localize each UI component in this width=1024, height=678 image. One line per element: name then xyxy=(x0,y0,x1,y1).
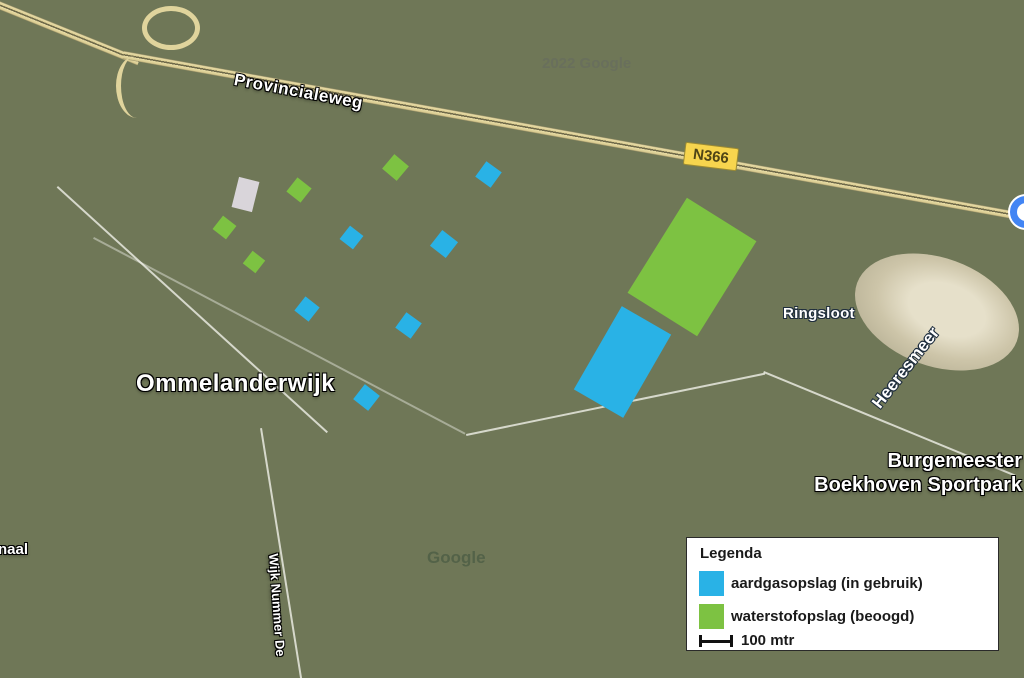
legend-label-aardgasopslag: aardgasopslag (in gebruik) xyxy=(731,575,923,592)
sportpark-label: Burgemeester Boekhoven Sportpark xyxy=(814,449,1022,498)
google-watermark-top: 2022 Google xyxy=(542,55,631,72)
legend-item-aardgasopslag: aardgasopslag (in gebruik) xyxy=(687,571,1000,596)
satellite-map: Provincialeweg N366 Ommelanderwijk Rings… xyxy=(0,0,1024,678)
legend: Legenda aardgasopslag (in gebruik) water… xyxy=(686,537,999,651)
legend-title: Legenda xyxy=(700,545,762,562)
scale-bar-icon xyxy=(699,635,733,647)
town-label-ommelanderwijk: Ommelanderwijk xyxy=(136,370,335,398)
waterway-label-ringsloot: Ringsloot xyxy=(783,305,855,322)
canal-label-partial: naal xyxy=(0,541,28,558)
interchange-loop-ramp xyxy=(142,6,200,50)
google-watermark-bottom: Google xyxy=(427,548,486,568)
poi-icon xyxy=(1017,203,1024,221)
sportpark-label-line1: Burgemeester xyxy=(814,449,1022,473)
legend-label-waterstofopslag: waterstofopslag (beoogd) xyxy=(731,608,914,625)
legend-item-waterstofopslag: waterstofopslag (beoogd) xyxy=(687,604,1000,629)
legend-swatch-blue xyxy=(699,571,724,596)
sportpark-label-line2: Boekhoven Sportpark xyxy=(814,473,1022,497)
scale-label: 100 mtr xyxy=(741,632,794,649)
legend-scale: 100 mtr xyxy=(699,634,979,648)
interchange-south-ramp xyxy=(116,56,156,118)
legend-swatch-green xyxy=(699,604,724,629)
